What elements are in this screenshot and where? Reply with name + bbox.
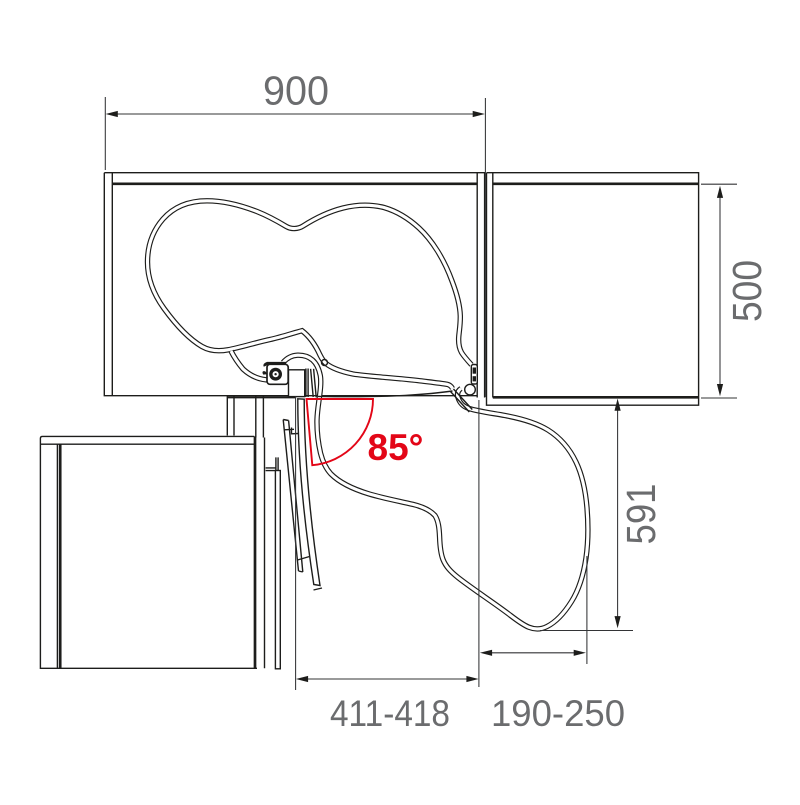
svg-text:190-250: 190-250 [491,692,625,734]
svg-text:900: 900 [263,68,329,114]
svg-text:500: 500 [724,260,770,322]
svg-text:591: 591 [618,484,664,545]
svg-text:411-418: 411-418 [330,692,450,734]
svg-text:85°: 85° [368,427,424,468]
